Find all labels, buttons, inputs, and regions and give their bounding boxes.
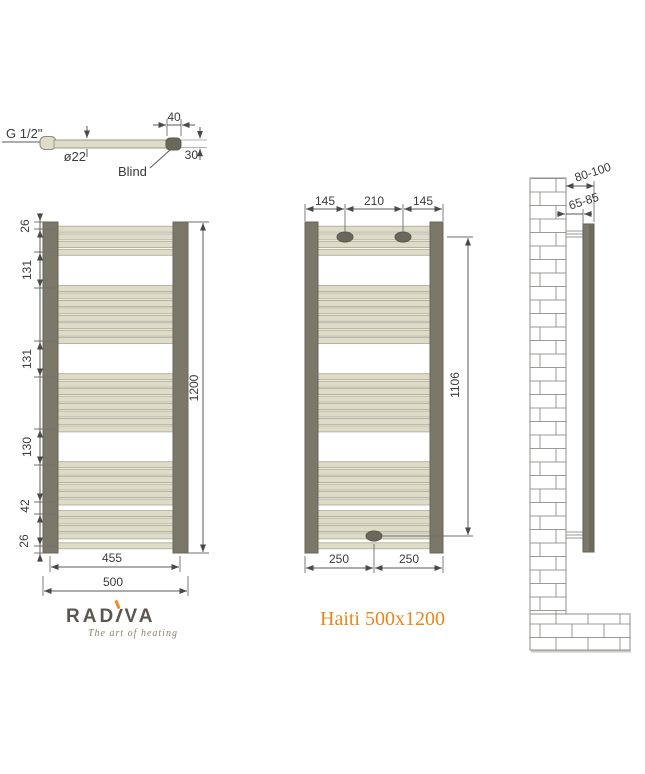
bracket-lines-bottom	[566, 532, 583, 538]
tube	[56, 462, 175, 468]
tube	[56, 286, 175, 292]
tube	[317, 462, 431, 468]
tube	[56, 234, 175, 240]
tube	[317, 396, 431, 402]
tube	[56, 469, 175, 475]
dim-42: 42	[18, 499, 32, 513]
tube	[56, 315, 175, 321]
brick-wall	[530, 178, 566, 614]
tube	[56, 249, 175, 255]
tube	[317, 315, 431, 321]
tube	[56, 396, 175, 402]
brand-logo: RADIVA	[66, 606, 155, 628]
dim-26-bottom: 26	[17, 534, 31, 548]
tube	[317, 518, 431, 524]
dim-500: 500	[103, 575, 123, 589]
dim-145-right: 145	[413, 194, 433, 208]
drawing-svg: G 1/2" ø22 40 30 Blind	[0, 0, 645, 774]
tube	[317, 308, 431, 314]
tube	[56, 323, 175, 329]
tube	[317, 477, 431, 483]
tube	[56, 404, 175, 410]
tube	[56, 477, 175, 483]
tube	[317, 323, 431, 329]
wall-bracket-top-right	[395, 232, 411, 242]
tube	[56, 308, 175, 314]
tube	[56, 338, 175, 344]
dim-145-left: 145	[315, 194, 335, 208]
dim-455: 455	[102, 551, 122, 565]
tube	[56, 389, 175, 395]
thread-label: G 1/2"	[6, 126, 43, 141]
dim-130: 130	[20, 437, 34, 457]
tube	[317, 469, 431, 475]
tube	[56, 526, 175, 532]
tube	[317, 226, 431, 232]
tube	[56, 330, 175, 336]
tube	[317, 418, 431, 424]
tube	[317, 338, 431, 344]
dim-210: 210	[364, 194, 384, 208]
dim-250-left: 250	[329, 552, 349, 566]
brand-text-post: VA	[124, 606, 155, 627]
blind-label: Blind	[118, 164, 147, 179]
tube	[56, 374, 175, 380]
left-rail	[305, 222, 318, 553]
front-view: 26 131 131 130 42 26 1200 455 500	[17, 213, 209, 596]
tube	[317, 511, 431, 517]
technical-drawing-page: G 1/2" ø22 40 30 Blind	[0, 0, 645, 774]
tube	[56, 533, 175, 539]
tube	[56, 499, 175, 505]
bracket-lines-top	[566, 231, 583, 237]
tubes-mid	[317, 226, 431, 549]
tube	[56, 543, 175, 549]
tube	[56, 418, 175, 424]
tube	[56, 242, 175, 248]
dim-26-top: 26	[18, 219, 32, 233]
tube	[56, 411, 175, 417]
tube	[317, 234, 431, 240]
tube	[317, 293, 431, 299]
tube	[56, 300, 175, 306]
left-rail	[43, 222, 58, 553]
right-rail	[173, 222, 188, 553]
diameter-label: ø22	[64, 149, 86, 164]
tubes-left	[56, 226, 175, 549]
side-view: 80-100 65-85	[530, 160, 631, 652]
offset-label: 30	[185, 148, 199, 162]
tube	[56, 518, 175, 524]
tube	[56, 426, 175, 432]
wall-bracket-bottom	[366, 531, 382, 541]
tube	[317, 242, 431, 248]
connection-detail: G 1/2" ø22 40 30 Blind	[2, 110, 207, 179]
tube	[317, 330, 431, 336]
tube	[56, 492, 175, 498]
tube	[317, 389, 431, 395]
radiator-profile-shade	[589, 225, 594, 551]
brick-floor	[530, 614, 630, 650]
tube	[317, 300, 431, 306]
tube	[56, 226, 175, 232]
tube	[317, 411, 431, 417]
tube	[317, 499, 431, 505]
tube	[317, 492, 431, 498]
mount-view: 145 210 145 1106 250 250	[305, 194, 473, 573]
wall-bracket-top-left	[337, 232, 353, 242]
dim-131-b: 131	[20, 349, 34, 369]
tube	[56, 511, 175, 517]
right-rail	[430, 222, 443, 553]
tube	[56, 381, 175, 387]
brand-tagline: The art of heating	[88, 628, 178, 639]
product-name: Haiti 500x1200	[320, 608, 445, 631]
tube	[317, 484, 431, 490]
dim-131-a: 131	[20, 260, 34, 280]
tube	[317, 249, 431, 255]
cap-length-label: 40	[167, 110, 181, 124]
dim-1200: 1200	[187, 374, 201, 401]
pipe	[54, 140, 168, 148]
tube	[317, 286, 431, 292]
brand-text-pre: RAD	[66, 606, 116, 627]
dim-wall-inner: 65-85	[567, 190, 601, 213]
tube	[317, 426, 431, 432]
blind-cap	[166, 138, 181, 150]
tube	[56, 484, 175, 490]
tube	[56, 293, 175, 299]
dim-1106: 1106	[448, 372, 462, 398]
dim-wall-outer: 80-100	[573, 160, 613, 185]
tube	[317, 404, 431, 410]
tube	[317, 374, 431, 380]
dim-250-right: 250	[399, 552, 419, 566]
tube	[317, 381, 431, 387]
blind-leader-line	[150, 150, 170, 168]
